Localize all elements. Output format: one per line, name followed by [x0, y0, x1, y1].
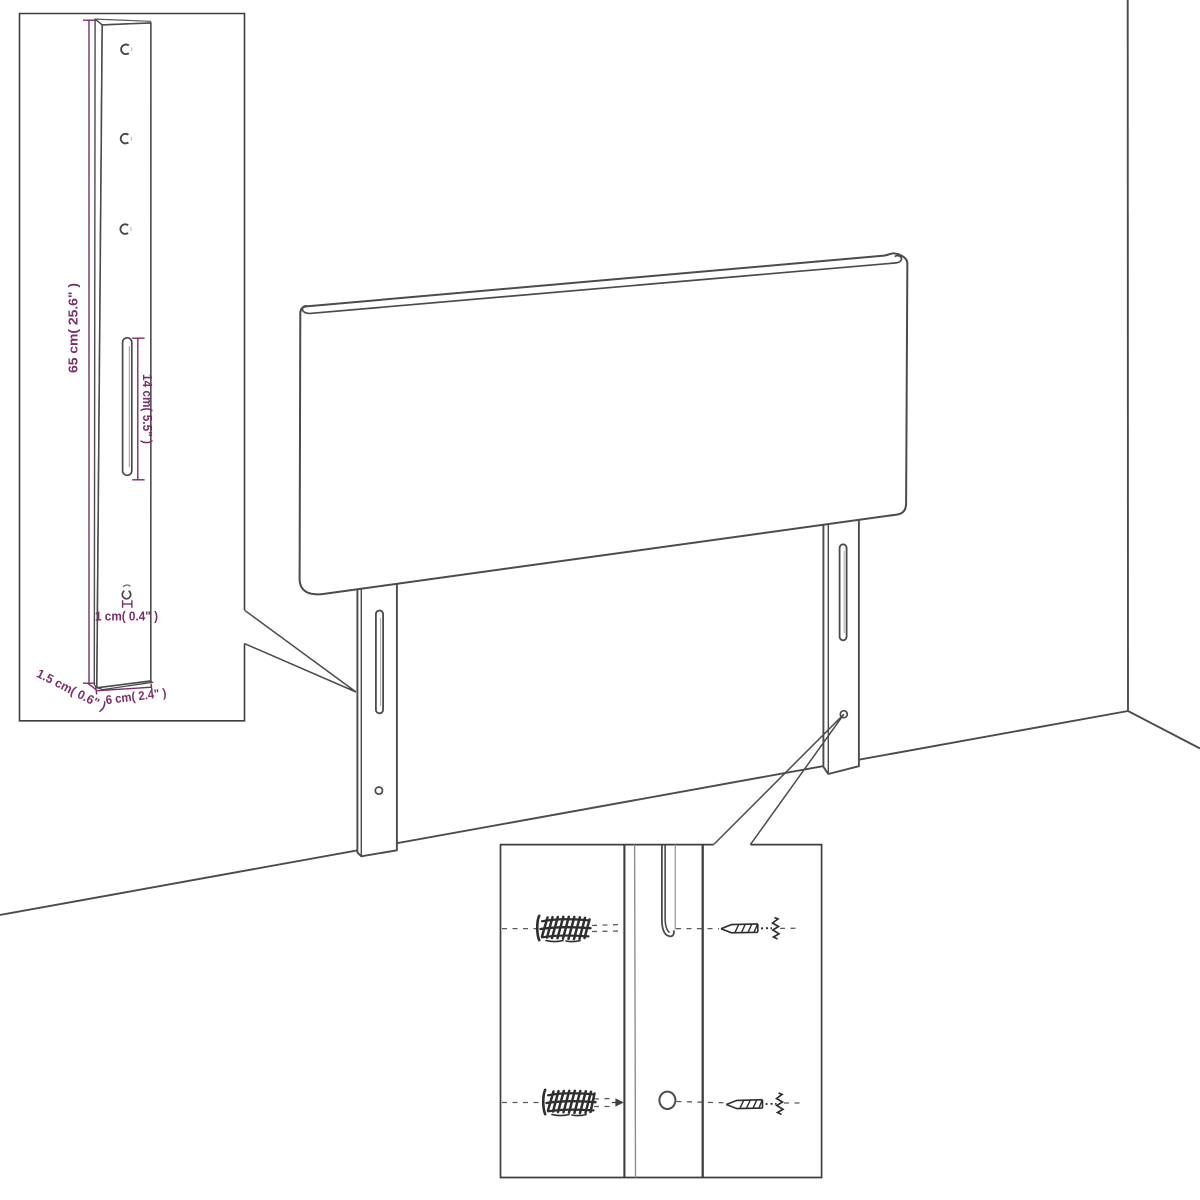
svg-text:14 cm( 5.5" ): 14 cm( 5.5" ) [140, 374, 154, 444]
svg-text:65 cm( 25.6" ): 65 cm( 25.6" ) [67, 283, 81, 373]
svg-text:1 cm( 0.4" ): 1 cm( 0.4" ) [95, 610, 158, 624]
